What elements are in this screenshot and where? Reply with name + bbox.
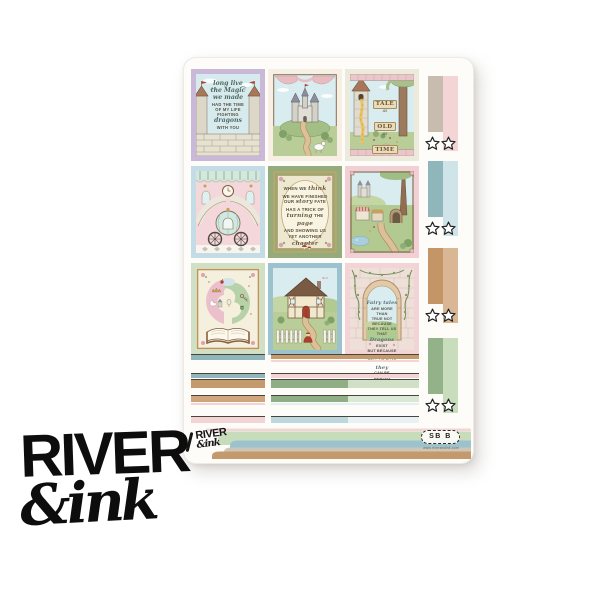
quote-segment: AND SHOWING US: [284, 228, 326, 233]
quote-line: YET ANOTHER: [281, 234, 329, 240]
sticker-box-long-live-quote: long live the Magic we made HAD THE TIME…: [191, 69, 265, 161]
star-outline-icon: [425, 398, 440, 413]
quote-line: ARE MORE THAN: [366, 307, 398, 317]
quote-segment: Fairy tales: [367, 300, 398, 306]
tab-sticker-green: [428, 338, 458, 413]
star-outline-icon: [425, 221, 440, 236]
quote-segment: THEY TELL US THAT: [368, 327, 397, 336]
sticker-sheet: long live the Magic we made HAD THE TIME…: [183, 57, 474, 464]
washi-strip: [191, 379, 265, 388]
quote-segment: think: [308, 186, 326, 192]
sheet-url-text: www.riverandink.com: [421, 446, 461, 450]
quote-word: OLD: [374, 122, 395, 131]
washi-strip: [191, 416, 265, 423]
sticker-box-another-chapter-quote: WHEN WE think WE HAVE FINISHED OUR story…: [268, 166, 342, 258]
quote-segment: page: [297, 221, 313, 227]
sticker-box-storybook-village: [345, 166, 419, 258]
ballroom-carriage-illustration: [196, 171, 260, 253]
sheet-footer-banner: RIVER &ink SB B www.riverandink.com: [188, 428, 471, 459]
star-outline-icon: [425, 136, 440, 151]
sheet-code-stamp: SB B: [421, 430, 460, 444]
washi-strip: [271, 373, 419, 378]
sheet-brand-logo: RIVER &ink: [195, 427, 228, 450]
tab-half-dark: [428, 338, 443, 394]
tab-sticker-teal: [428, 161, 458, 236]
quote-segment: HAS A TRICK OF: [286, 207, 324, 212]
washi-strip: [271, 379, 419, 388]
quote-segment: chapter: [292, 241, 318, 247]
quote-word: TALE: [373, 100, 397, 109]
product-photo: long live the Magic we made HAD THE TIME…: [0, 0, 600, 600]
quote-line: TRUE NOT BECAUSE: [366, 317, 398, 327]
washi-strip: [191, 403, 265, 405]
watermark-line2: &ink: [19, 472, 190, 534]
washi-strip: [271, 360, 419, 362]
washi-strip: [191, 373, 265, 378]
quote-line: dragons: [207, 118, 249, 125]
quote-segment: turning: [287, 213, 313, 219]
washi-strip: [271, 416, 419, 423]
sticker-box-ballroom-carriage: [191, 166, 265, 258]
quote-segment: YET ANOTHER: [288, 234, 322, 239]
quote-word: TIME: [372, 145, 397, 154]
sticker-box-tale-as-old-as-time: TALE as OLD as TIME: [345, 69, 419, 161]
quote-segment: THE: [313, 213, 324, 218]
quote-segment: TRUE NOT BECAUSE: [372, 317, 393, 326]
quote-segment: ARE MORE THAN: [371, 307, 393, 316]
star-outline-icon: [441, 136, 456, 151]
tab-half-dark: [428, 76, 443, 132]
quote-line: Dragons EXIST: [366, 337, 398, 349]
star-outline-icon: [425, 308, 440, 323]
castle-on-hill-illustration: [273, 74, 337, 156]
quote-segment: OUR: [284, 199, 296, 204]
sticker-box-magic-storybook: [191, 263, 265, 355]
quote-segment: story: [296, 199, 313, 205]
sticker-box-dragons-can-be-beaten: Fairy tales ARE MORE THAN TRUE NOT BECAU…: [345, 263, 419, 355]
washi-strip: [271, 403, 419, 405]
quote-line: WITH YOU: [207, 125, 249, 130]
quote-long-live: long live the Magic we made HAD THE TIME…: [207, 81, 249, 130]
quote-line: WHEN WE think: [281, 186, 329, 194]
quote-segment: Dragons: [370, 337, 395, 343]
star-outline-icon: [441, 308, 456, 323]
washi-strip: [271, 354, 419, 359]
quote-line: OUR story FATE: [281, 199, 329, 207]
quote-line: chapter: [281, 240, 329, 247]
storybook-illustration: [196, 268, 260, 350]
quote-segment: they: [376, 365, 389, 371]
cottage-illustration: [273, 268, 337, 350]
tab-half-dark: [428, 161, 443, 217]
quote-segment: WHEN WE: [284, 186, 309, 191]
star-outline-icon: [441, 221, 456, 236]
tab-sticker-blush: [428, 76, 458, 151]
village-illustration: [350, 171, 414, 253]
washi-strip: [191, 395, 265, 402]
tab-half-dark: [428, 248, 443, 304]
quote-dragons-can-be-beaten: Fairy tales ARE MORE THAN TRUE NOT BECAU…: [366, 300, 398, 382]
brand-watermark: RIVER &ink: [20, 424, 188, 529]
quote-tale-as-old-as-time: TALE as OLD as TIME: [372, 92, 398, 156]
sticker-box-fairytale-cottage: [268, 263, 342, 355]
sticker-box-castle-on-hill: [268, 69, 342, 161]
quote-segment: EXIST: [376, 344, 388, 348]
washi-strip: [271, 395, 419, 402]
washi-strip: [191, 354, 265, 360]
quote-segment: FATE: [313, 199, 326, 204]
quote-line: THEY TELL US THAT: [366, 327, 398, 337]
quote-line: we made: [207, 95, 249, 102]
quote-line: turning THE page: [281, 213, 329, 228]
quote-another-chapter: WHEN WE think WE HAVE FINISHED OUR story…: [281, 186, 329, 247]
quote-segment: WE HAVE FINISHED: [282, 194, 327, 199]
star-outline-icon: [441, 398, 456, 413]
tab-sticker-tan: [428, 248, 458, 323]
